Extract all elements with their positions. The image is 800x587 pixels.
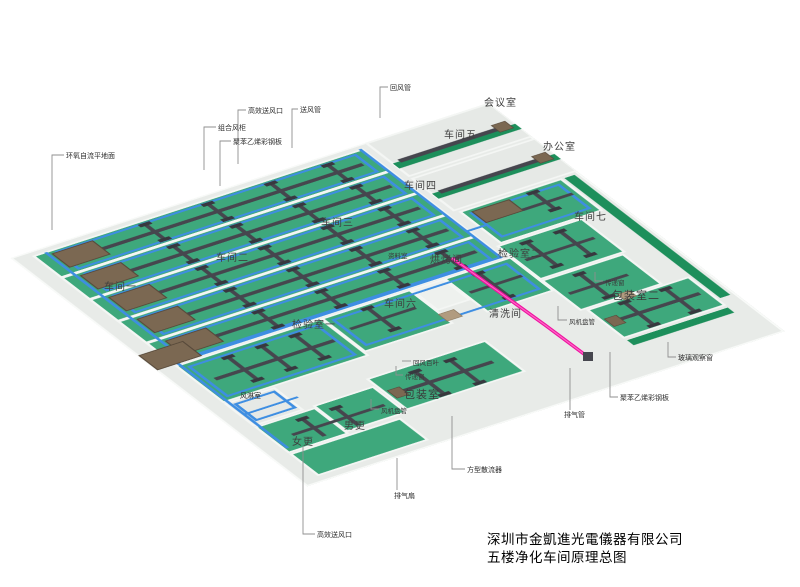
label-bake-room: 烘烤间 (430, 251, 463, 266)
label-pack-room-1: 包装室一 (404, 386, 452, 402)
label-workshop-1: 车间一 (104, 278, 137, 293)
label-data-room: 资料室 (388, 250, 408, 260)
label-glass-window: 玻璃观察窗 (678, 353, 713, 363)
cleanroom-principle-drawing: 环氧自流平地面 组合风柜 聚苯乙烯彩钢板 高效送风口 送风管 回风管 会议室 办… (0, 0, 800, 587)
label-pass-window-right: 传递窗 (605, 277, 625, 287)
label-floor-coating: 环氧自流平地面 (66, 151, 115, 161)
label-workshop-6: 车间六 (384, 295, 417, 310)
label-pass-window-center: 传递窗 (405, 371, 425, 381)
label-panel-top: 聚苯乙烯彩钢板 (233, 137, 282, 147)
label-supply-duct: 送风管 (300, 105, 321, 115)
title-company: 深圳市金凱進光電儀器有限公司 (487, 531, 683, 549)
label-hepa-bottom: 高效送风口 (317, 530, 352, 540)
label-men-change: 男更 (344, 417, 366, 432)
label-meeting-room: 会议室 (484, 94, 517, 109)
label-return-duct: 回风管 (390, 83, 411, 93)
title-block: 深圳市金凱進光電儀器有限公司 五楼净化车间原理总图 (487, 531, 683, 567)
label-qc-room-1: 检验室一 (292, 316, 336, 331)
label-workshop-5: 车间五 (444, 126, 477, 141)
label-ahu-unit: 组合风柜 (218, 123, 246, 133)
label-return-louver: 回风百叶 (413, 357, 439, 367)
label-exhaust-fan: 排气扇 (394, 491, 415, 501)
label-fan-coil-right: 风机盘管 (569, 316, 595, 326)
label-women-change: 女更 (292, 433, 314, 448)
label-workshop-3: 车间三 (321, 214, 354, 229)
label-fan-coil-center: 风机盘管 (381, 405, 407, 415)
label-clean-room: 清洗间 (489, 305, 522, 320)
label-hepa-top: 高效送风口 (248, 106, 283, 116)
label-square-diffuser: 方型散流器 (467, 465, 502, 475)
label-pack-room-2: 包装室二 (612, 287, 660, 303)
label-qc-room-2: 检验室二 (498, 245, 542, 260)
label-air-shower: 风淋室 (240, 391, 261, 401)
label-workshop-2: 车间二 (216, 249, 249, 264)
title-drawing: 五楼净化车间原理总图 (487, 549, 683, 567)
label-panel-right: 聚苯乙烯彩钢板 (620, 393, 669, 403)
label-workshop-7: 车间七 (574, 208, 607, 223)
label-workshop-4: 车间四 (404, 177, 437, 192)
label-exhaust-pipe: 排气管 (564, 410, 585, 420)
label-office: 办公室 (543, 138, 576, 153)
